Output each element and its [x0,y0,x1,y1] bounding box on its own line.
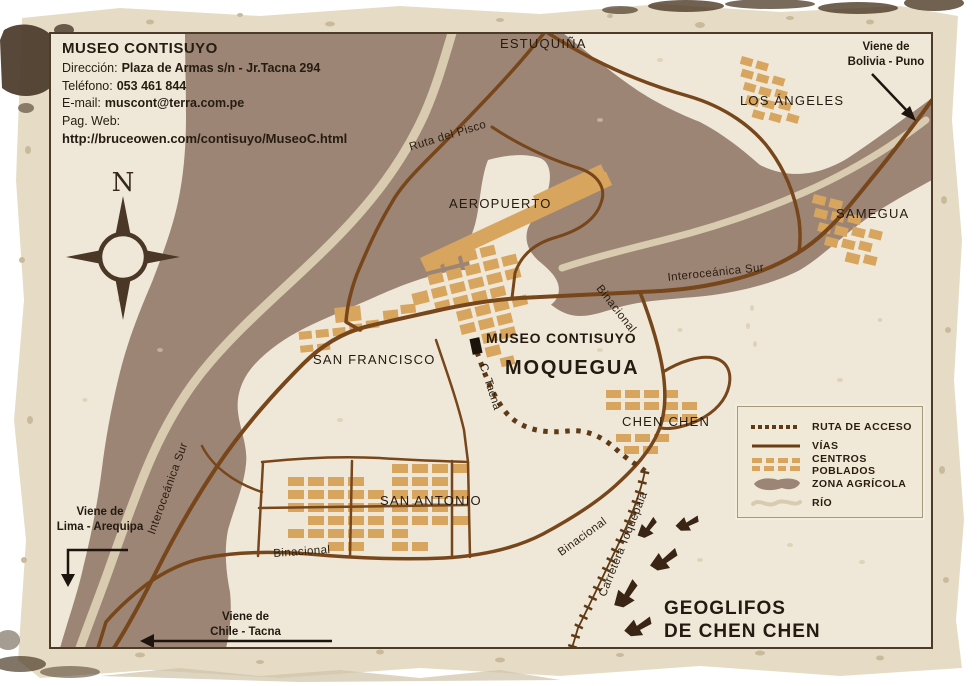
place-label-geoglifos: GEOGLIFOS DE CHEN CHEN [664,597,821,643]
legend-box: RUTA DE ACCESO VÍAS CENTROS POBLADOS ZON… [737,406,923,518]
place-label-museo-contisuyo: MUSEO CONTISUYO [486,330,636,346]
place-label-chen-chen: CHEN CHEN [622,414,710,429]
map-document: N MUSEO CONTISUYO Dirección:Plaza de Arm… [0,0,980,686]
place-label-aeropuerto: AEROPUERTO [449,196,552,211]
info-address: Dirección:Plaza de Armas s/n - Jr.Tacna … [62,60,382,78]
compass-north-label: N [109,168,137,198]
info-title: MUSEO CONTISUYO [62,40,382,57]
place-label-samegua: SAMEGUA [836,206,909,221]
place-label-san-francisco: SAN FRANCISCO [313,352,436,367]
place-label-los-angeles: LOS ÁNGELES [740,93,844,108]
legend-road-line-icon [750,437,802,455]
direction-label-lima: Viene de Lima - Arequipa [34,505,166,535]
info-email: E-mail:muscont@terra.com.pe [62,95,382,113]
place-label-san-antonio: SAN ANTONIO [380,493,482,508]
direction-label-bolivia: Viene de Bolivia - Puno [830,40,942,70]
place-label-estuquina: ESTUQUIÑA [500,36,587,51]
museum-info-box: MUSEO CONTISUYO Dirección:Plaza de Armas… [62,40,382,148]
legend-item-zona-agricola: ZONA AGRÍCOLA [750,475,912,493]
direction-label-chile: Viene de Chile - Tacna [178,610,313,640]
legend-river-line-icon [750,494,802,512]
legend-item-ruta-de-acceso: RUTA DE ACCESO [750,418,912,436]
legend-item-rio: RÍO [750,494,912,512]
info-phone: Teléfono:053 461 844 [62,78,382,96]
place-label-moquegua: MOQUEGUA [505,357,639,380]
legend-settlement-blocks-icon [750,456,802,474]
legend-agricultural-blob-icon [750,475,802,493]
legend-item-centros-poblados: CENTROS POBLADOS [750,456,912,474]
info-web-label: Pag. Web: [62,113,382,131]
info-web-url: http://bruceowen.com/contisuyo/MuseoC.ht… [62,130,382,148]
legend-dotted-route-icon [750,418,802,436]
